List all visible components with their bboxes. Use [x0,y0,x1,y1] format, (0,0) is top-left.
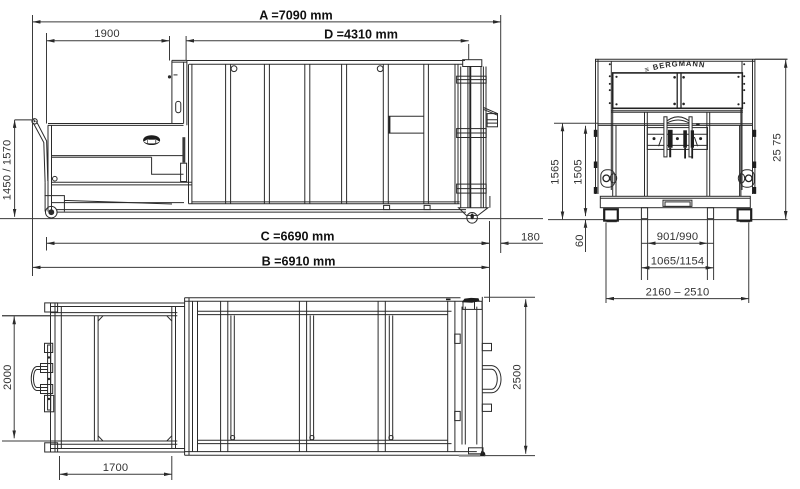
svg-text:901/990: 901/990 [657,231,699,243]
svg-text:1565: 1565 [550,159,562,185]
svg-text:25 75: 25 75 [772,133,784,162]
svg-text:B =6910 mm: B =6910 mm [262,254,336,268]
svg-text:1065/1154: 1065/1154 [651,255,704,267]
svg-text:1900: 1900 [94,28,120,40]
svg-text:180: 180 [521,231,540,243]
svg-text:A =7090 mm: A =7090 mm [259,8,332,22]
svg-text:1505: 1505 [573,159,585,185]
svg-text:60: 60 [574,234,586,247]
svg-text:2160 – 2510: 2160 – 2510 [646,286,710,298]
svg-text:C =6690 mm: C =6690 mm [261,230,335,244]
svg-text:D =4310 mm: D =4310 mm [324,27,398,41]
svg-text:1450 / 1570: 1450 / 1570 [2,140,14,201]
svg-text:2500: 2500 [512,364,524,390]
svg-text:2000: 2000 [2,365,14,391]
svg-text:1700: 1700 [103,462,129,474]
